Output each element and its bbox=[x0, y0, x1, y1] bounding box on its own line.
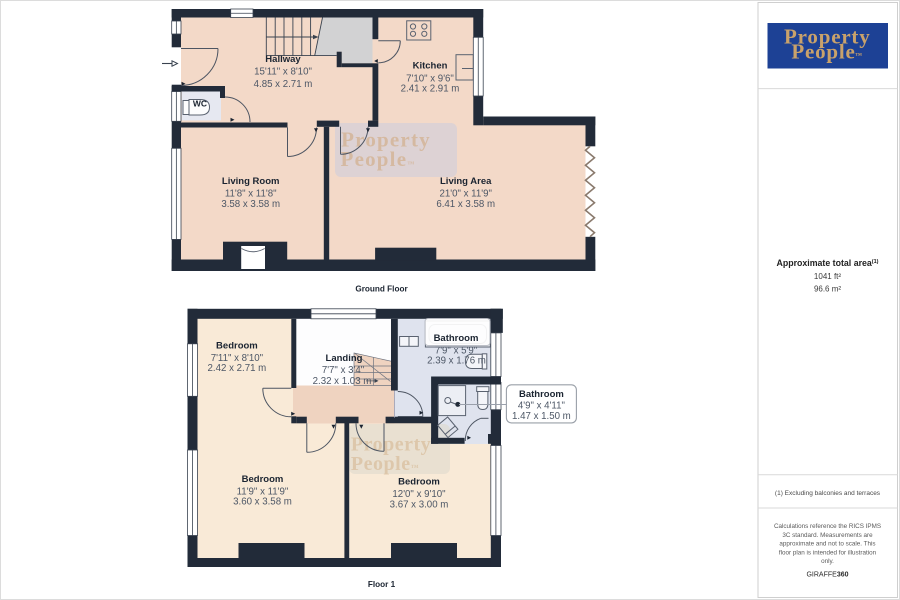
svg-text:Floor 1: Floor 1 bbox=[368, 580, 396, 589]
svg-text:Bathroom: Bathroom bbox=[519, 389, 564, 400]
svg-text:Living Room: Living Room bbox=[222, 176, 280, 187]
svg-text:Kitchen: Kitchen bbox=[413, 61, 448, 72]
svg-text:Calculations reference the RIC: Calculations reference the RICS IPMS bbox=[774, 523, 881, 530]
svg-text:2.41 x 2.91 m: 2.41 x 2.91 m bbox=[401, 84, 460, 95]
svg-text:People™: People™ bbox=[341, 147, 416, 171]
svg-text:3.60 x 3.58 m: 3.60 x 3.58 m bbox=[233, 496, 292, 507]
svg-text:™: ™ bbox=[855, 52, 862, 60]
svg-text:Hallway: Hallway bbox=[265, 54, 301, 65]
svg-text:Approximate total area(1): Approximate total area(1) bbox=[776, 258, 878, 268]
svg-text:only.: only. bbox=[821, 558, 834, 565]
svg-text:3.67 x 3.00 m: 3.67 x 3.00 m bbox=[390, 500, 449, 511]
svg-text:3C standard. Measurements are: 3C standard. Measurements are bbox=[782, 532, 873, 539]
svg-text:1041 ft²: 1041 ft² bbox=[814, 272, 841, 281]
svg-text:4.85 x 2.71 m: 4.85 x 2.71 m bbox=[254, 79, 313, 90]
svg-text:2.32 x 1.03 m: 2.32 x 1.03 m bbox=[313, 376, 372, 387]
svg-text:Ground Floor: Ground Floor bbox=[355, 285, 408, 294]
svg-text:Bedroom: Bedroom bbox=[398, 477, 440, 488]
svg-text:Bedroom: Bedroom bbox=[216, 340, 258, 351]
svg-text:21'0" x 11'9": 21'0" x 11'9" bbox=[439, 189, 492, 200]
svg-text:Bedroom: Bedroom bbox=[242, 474, 284, 485]
svg-text:1.47 x 1.50 m: 1.47 x 1.50 m bbox=[512, 411, 571, 422]
svg-text:WC: WC bbox=[193, 99, 207, 109]
svg-text:6.41 x 3.58 m: 6.41 x 3.58 m bbox=[436, 199, 495, 210]
svg-text:12'0" x 9'10": 12'0" x 9'10" bbox=[392, 489, 446, 500]
svg-text:3.58 x 3.58 m: 3.58 x 3.58 m bbox=[221, 199, 280, 210]
svg-text:People: People bbox=[791, 40, 855, 64]
svg-text:(1) Excluding balconies and te: (1) Excluding balconies and terraces bbox=[775, 490, 881, 497]
svg-text:approximate and not to scale.: approximate and not to scale. This bbox=[779, 541, 875, 548]
svg-text:2.39 x 1.76 m: 2.39 x 1.76 m bbox=[427, 356, 486, 367]
svg-text:floor plan is intended for ill: floor plan is intended for illustration bbox=[779, 549, 877, 556]
svg-text:2.42 x 2.71 m: 2.42 x 2.71 m bbox=[208, 363, 267, 374]
svg-text:Living Area: Living Area bbox=[440, 176, 492, 187]
svg-text:GIRAFFE360: GIRAFFE360 bbox=[806, 572, 848, 579]
svg-text:Bathroom: Bathroom bbox=[434, 333, 479, 344]
svg-text:96.6 m²: 96.6 m² bbox=[814, 285, 841, 294]
svg-text:11'8" x 11'8": 11'8" x 11'8" bbox=[225, 188, 277, 199]
svg-text:15'11" x 8'10": 15'11" x 8'10" bbox=[254, 67, 312, 78]
svg-text:7'7" x 3'4": 7'7" x 3'4" bbox=[322, 365, 365, 376]
svg-text:People™: People™ bbox=[351, 453, 419, 475]
svg-text:Landing: Landing bbox=[326, 353, 363, 364]
